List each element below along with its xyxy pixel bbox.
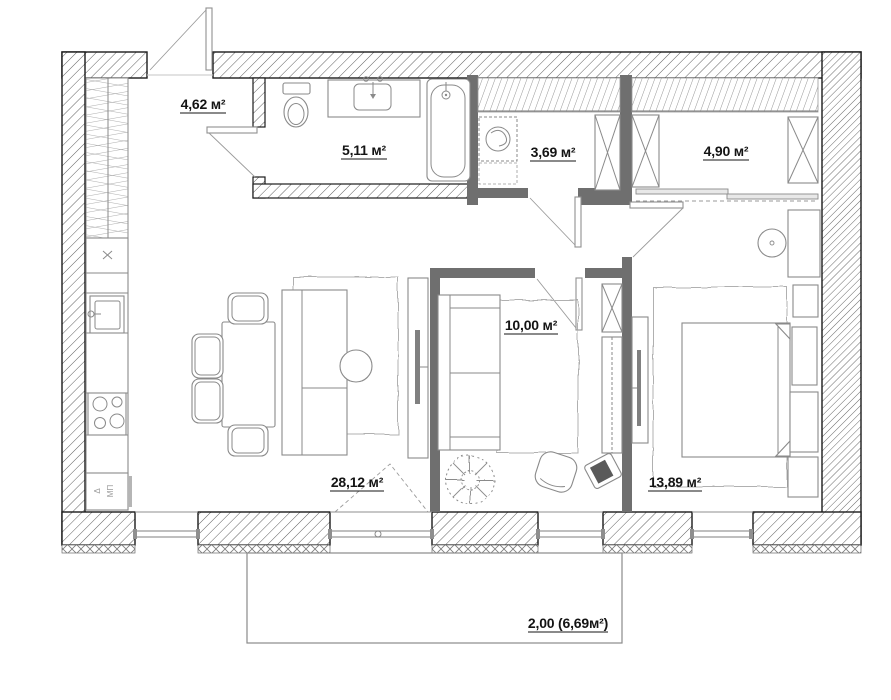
- kitchen-sink: [88, 296, 124, 333]
- bathroom-wall-left: [253, 78, 265, 127]
- insulation-strip: [198, 545, 330, 553]
- tv-console-bedroom: [632, 317, 648, 443]
- fridge-cabinet: Δ МП: [86, 473, 132, 510]
- bedroom-furniture: [632, 210, 820, 497]
- entry-wardrobe: [86, 78, 128, 238]
- crossed-cabinet: [632, 115, 659, 187]
- label-bathroom: 5,11 м²: [342, 142, 387, 158]
- room10-wall-top-right: [585, 268, 622, 278]
- insulation-strip: [603, 545, 692, 553]
- bedroom-door-swing: [633, 208, 683, 257]
- crossed-cabinet: [602, 284, 622, 332]
- round-stool: [758, 229, 786, 257]
- room10-wall-top-left: [430, 268, 535, 278]
- dining-table: [222, 322, 275, 427]
- label-wardrobe-large: 4,90 м²: [704, 143, 749, 159]
- wall-bottom-pier-5: [753, 512, 861, 545]
- label-hallway: 4,62 м²: [181, 96, 226, 112]
- wall-bottom-pier-4: [603, 512, 692, 545]
- bathroom-door-swing: [209, 133, 255, 177]
- tv-bedroom: [637, 350, 641, 426]
- appliance-marker: Δ: [93, 488, 102, 494]
- wardrobe-divider-wall: [620, 75, 632, 188]
- label-balcony: 2,00 (6,69м²): [528, 615, 608, 631]
- wall-bottom-pier-3: [432, 512, 538, 545]
- label-room10: 10,00 м²: [505, 317, 558, 333]
- sliding-door-panel-2: [727, 194, 818, 199]
- kitchen-counter: [86, 238, 128, 510]
- insulation-strip: [62, 545, 135, 553]
- corridor-junction-wall: [578, 188, 632, 205]
- wall-bottom-pier-1: [62, 512, 135, 545]
- dining-chair: [228, 425, 268, 456]
- wall-left: [62, 52, 85, 545]
- headboard-panel: [790, 392, 818, 452]
- label-bedroom: 13,89 м²: [649, 474, 702, 490]
- entrance-door-swing: [150, 10, 206, 70]
- appliance-code: МП: [106, 485, 115, 498]
- living-sofa: [282, 290, 372, 455]
- nightstand: [788, 457, 818, 497]
- floor-plan-page: Δ МП: [0, 0, 891, 700]
- crossed-cabinet: [595, 115, 620, 190]
- room10-door-leaf: [576, 278, 582, 330]
- plant: [446, 456, 494, 504]
- wardrobe-small-wall-bottom-left: [477, 188, 528, 198]
- room10-sofa: [438, 295, 500, 450]
- wardrobe-small-door-leaf: [575, 197, 581, 247]
- side-table: [340, 350, 372, 382]
- wall-bottom-pier-2: [198, 512, 330, 545]
- vanity-sink: [328, 77, 420, 117]
- stove: [88, 393, 126, 435]
- tv-console-living: [408, 278, 428, 458]
- sliding-door-panel-1: [636, 189, 728, 194]
- insulation-strip: [432, 545, 538, 553]
- cabinet-handle: [128, 476, 132, 507]
- nightstand: [793, 285, 818, 317]
- kitchen-run: Δ МП: [86, 238, 132, 510]
- wall-top-right: [213, 52, 861, 78]
- wardrobe-small-door-swing: [530, 198, 575, 245]
- bedroom-door-leaf: [630, 202, 683, 208]
- label-living: 28,12 м²: [331, 474, 384, 490]
- bathroom-fixtures: [283, 77, 470, 181]
- tv-living: [415, 330, 420, 404]
- label-wardrobe-small: 3,69 м²: [531, 144, 576, 160]
- living-furniture: [192, 277, 428, 458]
- bedroom-wardrobe: [788, 210, 820, 277]
- hanging-rail-small: [478, 78, 620, 112]
- dining-chair: [228, 293, 268, 324]
- entrance-door-leaf: [206, 8, 212, 70]
- pouf: [532, 449, 579, 495]
- room10-bedroom-wall: [622, 257, 632, 512]
- bathroom-door-leaf: [207, 127, 257, 133]
- wall-right: [822, 52, 861, 545]
- washing-machine: [479, 117, 517, 184]
- desk-room10: [602, 337, 622, 453]
- floor-plan-canvas: Δ МП: [0, 0, 891, 700]
- headboard-panel: [792, 327, 817, 385]
- dining-chair: [192, 334, 223, 378]
- hanging-rail-large: [632, 78, 818, 112]
- insulation-strip: [753, 545, 861, 553]
- crossed-cabinet: [788, 117, 818, 183]
- chair-with-laptop: [584, 452, 623, 489]
- toilet: [283, 83, 310, 127]
- bed: [682, 323, 790, 457]
- bathroom-wall-bottom: [253, 184, 470, 198]
- balcony-door-handle: [375, 531, 381, 537]
- dining-chair: [192, 379, 223, 423]
- bathtub: [427, 79, 470, 181]
